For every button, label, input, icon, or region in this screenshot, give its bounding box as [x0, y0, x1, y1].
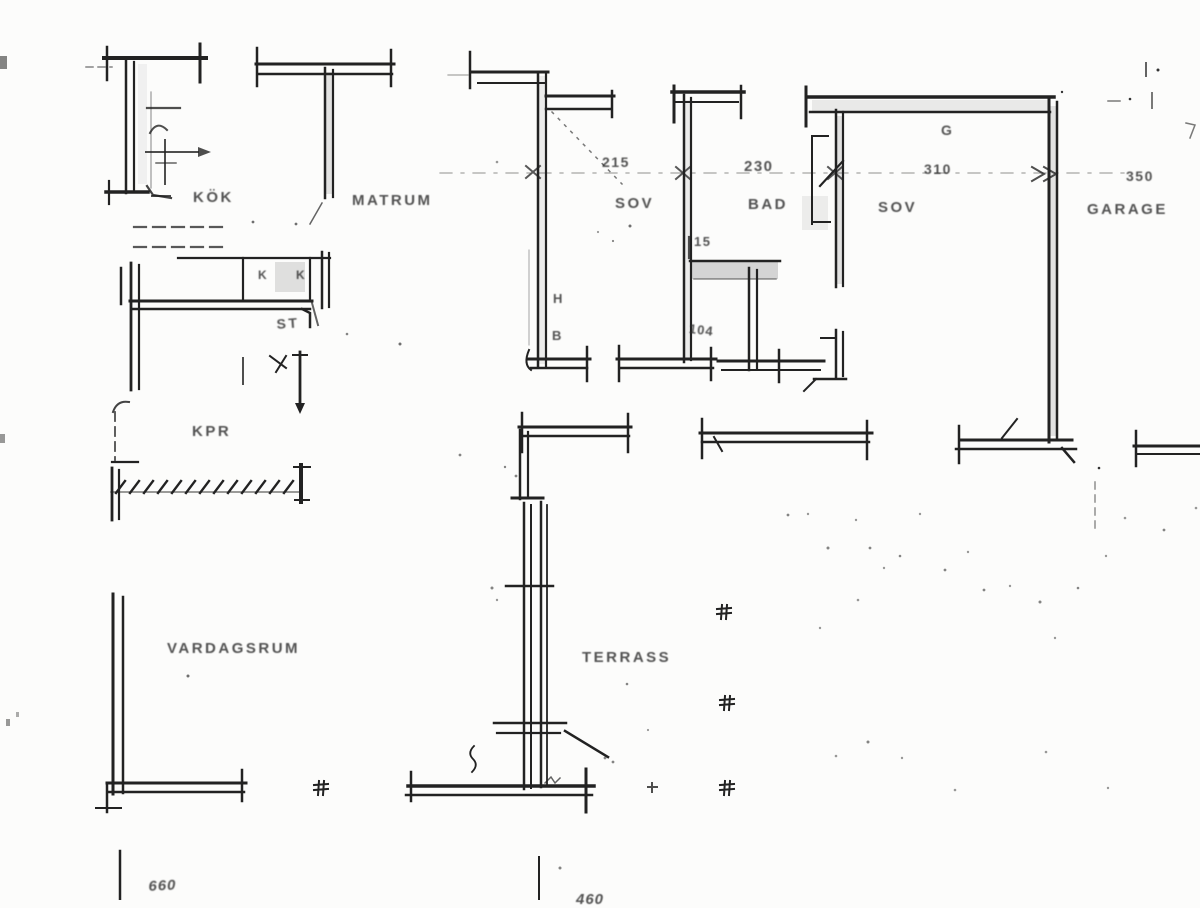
dim-hall-door: 104 [688, 321, 714, 339]
room-label-kok: KÖK [193, 189, 234, 206]
hall-label-h: H [553, 291, 565, 306]
room-label-kpr: KPR [192, 423, 231, 440]
floorplan-drawing [0, 0, 1200, 900]
fixture-label-k1: K [258, 268, 269, 282]
scanned-floor-plan-page: KÖK MATRUM 215 SOV 230 BAD 15 G 310 SOV … [0, 0, 1200, 900]
room-label-terrass: TERRASS [582, 649, 671, 666]
fixture-label-k2: K [296, 268, 307, 282]
room-label-bad: BAD [748, 196, 788, 213]
noise-specks [0, 56, 1197, 870]
dim-sov2-width: 310 [924, 161, 952, 177]
hall-label-b: B [552, 328, 564, 343]
dim-bottom-left: 660 [148, 877, 177, 895]
room-label-st: ST [276, 314, 300, 332]
dim-bath-door: 15 [694, 234, 711, 249]
dim-sov1-width: 215 [602, 154, 630, 170]
room-label-matrum: MATRUM [352, 192, 433, 209]
dim-garage-width: 350 [1126, 168, 1154, 184]
room-label-garage: GARAGE [1087, 201, 1168, 218]
wall-shading [138, 64, 1057, 436]
kitchen-fixture-symbols [146, 92, 211, 198]
room-label-sov2: SOV [878, 199, 917, 216]
room-label-vardagsrum: VARDAGSRUM [167, 640, 300, 657]
dim-bad-width: 230 [744, 158, 774, 175]
hatch-marks [111, 465, 310, 502]
closet-label-g: G [941, 122, 954, 138]
room-label-sov1: SOV [615, 195, 654, 212]
